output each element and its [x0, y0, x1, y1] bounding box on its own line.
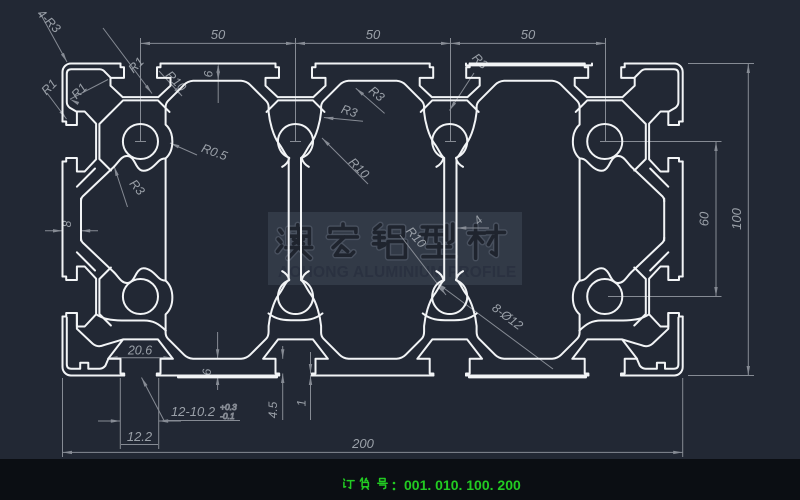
svg-text:60: 60: [697, 211, 712, 226]
svg-text:100: 100: [729, 207, 744, 229]
svg-text:1: 1: [295, 400, 309, 407]
svg-text:-0.1: -0.1: [220, 411, 235, 421]
svg-text:12-10.2: 12-10.2: [171, 404, 216, 419]
svg-text:6: 6: [200, 368, 214, 375]
svg-text:6: 6: [202, 70, 216, 77]
svg-text:4.5: 4.5: [266, 401, 280, 418]
svg-text:50: 50: [521, 27, 536, 42]
svg-text:AOHONG ALUMINIUM PROFILE: AOHONG ALUMINIUM PROFILE: [278, 264, 516, 281]
svg-text:50: 50: [366, 27, 381, 42]
svg-text:20.6: 20.6: [127, 344, 152, 358]
svg-text:12.2: 12.2: [127, 429, 153, 444]
svg-text:001. 010. 100. 200: 001. 010. 100. 200: [404, 477, 521, 493]
svg-text:50: 50: [211, 27, 226, 42]
svg-text:200: 200: [351, 436, 374, 451]
